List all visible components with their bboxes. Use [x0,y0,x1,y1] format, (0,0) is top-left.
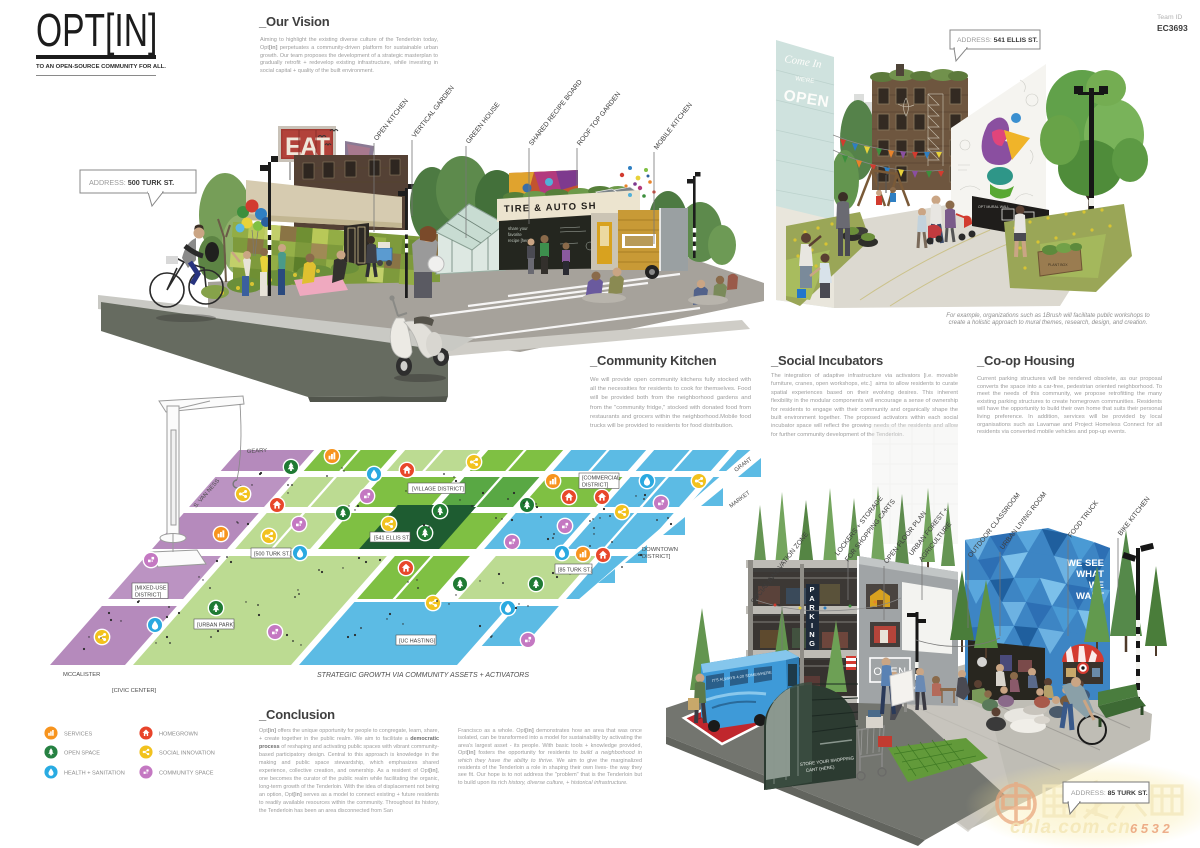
svg-text:COMMUNITY SPACE: COMMUNITY SPACE [159,771,214,777]
svg-text:SERVICES: SERVICES [64,732,92,738]
svg-text:OPEN SPACE: OPEN SPACE [64,751,100,757]
svg-text:SOCIAL INNOVATION: SOCIAL INNOVATION [159,751,215,757]
svg-text:HEALTH + SANITATION: HEALTH + SANITATION [64,771,125,777]
svg-text:HOMEGROWN: HOMEGROWN [159,732,198,738]
